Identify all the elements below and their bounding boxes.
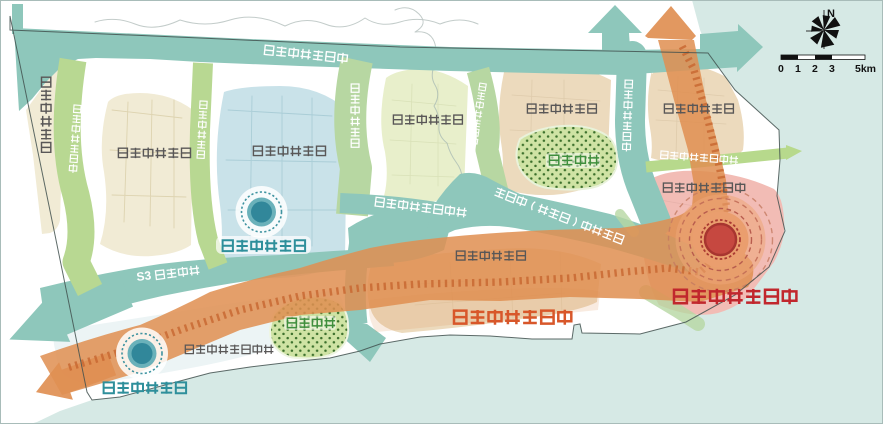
svg-text:S3: S3 (136, 268, 153, 284)
svg-text:5km: 5km (855, 63, 876, 75)
svg-text:N: N (827, 8, 835, 20)
svg-text:1: 1 (795, 63, 801, 75)
svg-text:3: 3 (829, 63, 835, 75)
svg-text:0: 0 (778, 63, 784, 75)
svg-text:2: 2 (812, 63, 818, 75)
